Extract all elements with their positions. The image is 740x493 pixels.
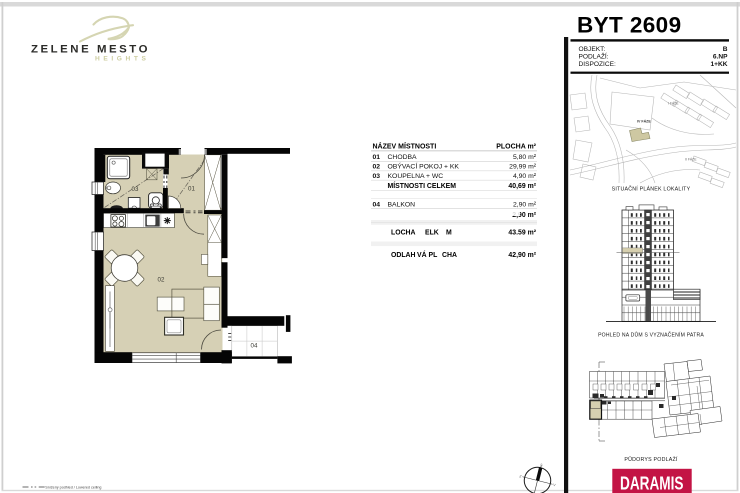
svg-text:02: 02 bbox=[158, 277, 165, 284]
svg-text:5,80 m²: 5,80 m² bbox=[513, 154, 537, 161]
svg-text:KOUPELNA + WC: KOUPELNA + WC bbox=[388, 173, 444, 180]
svg-text:ODLAH: ODLAH bbox=[391, 252, 416, 259]
svg-text:IV FÁZE: IV FÁZE bbox=[637, 119, 651, 124]
svg-text:OBJEKT:: OBJEKT: bbox=[579, 46, 606, 53]
svg-text:M: M bbox=[446, 229, 452, 236]
svg-text:Snížený podhled / Lowered ceil: Snížený podhled / Lowered ceiling bbox=[45, 486, 101, 490]
svg-text:OBÝVACÍ POKOJ + KK: OBÝVACÍ POKOJ + KK bbox=[388, 162, 460, 171]
svg-text:SITUAČNÍ PLÁNEK LOKALITY: SITUAČNÍ PLÁNEK LOKALITY bbox=[612, 186, 691, 193]
svg-text:HEIGHTS: HEIGHTS bbox=[95, 55, 150, 62]
svg-text:04: 04 bbox=[373, 201, 381, 208]
svg-text:DARAMIS: DARAMIS bbox=[620, 474, 684, 493]
svg-text:BYT 2609: BYT 2609 bbox=[577, 13, 682, 38]
svg-text:ZELENE MESTO: ZELENE MESTO bbox=[31, 43, 150, 55]
svg-text:MÍSTNOSTI CELKEM: MÍSTNOSTI CELKEM bbox=[388, 181, 457, 190]
svg-text:POHLED NA DŮM S VYZNAČENÍM PAT: POHLED NA DŮM S VYZNAČENÍM PATRA bbox=[598, 332, 704, 339]
svg-text:01: 01 bbox=[188, 186, 195, 193]
svg-text:CHODBA: CHODBA bbox=[388, 154, 418, 161]
svg-text:ELK: ELK bbox=[425, 229, 439, 236]
svg-text:NÁZEV MÍSTNOSTI: NÁZEV MÍSTNOSTI bbox=[373, 141, 437, 150]
svg-text:LOCHA: LOCHA bbox=[391, 229, 416, 236]
svg-text:1+KK: 1+KK bbox=[710, 61, 727, 68]
svg-text:6.NP: 6.NP bbox=[713, 53, 728, 60]
svg-text:PŮDORYS PODLAŽÍ: PŮDORYS PODLAŽÍ bbox=[624, 455, 678, 463]
svg-text:02: 02 bbox=[373, 164, 381, 171]
svg-text:PODLAŽÍ:: PODLAŽÍ: bbox=[579, 51, 609, 60]
svg-text:2,90 m²: 2,90 m² bbox=[513, 201, 537, 208]
svg-text:CHA: CHA bbox=[442, 252, 457, 259]
svg-text:42,90 m²: 42,90 m² bbox=[508, 252, 536, 259]
svg-text:VÁ PL: VÁ PL bbox=[417, 250, 437, 259]
svg-text:PLOCHA m²: PLOCHA m² bbox=[496, 143, 536, 150]
svg-text:43.59 m²: 43.59 m² bbox=[508, 229, 536, 236]
svg-text:04: 04 bbox=[251, 343, 258, 350]
svg-text:03: 03 bbox=[373, 173, 381, 180]
svg-text:03: 03 bbox=[132, 186, 139, 193]
svg-text:I FÁZE: I FÁZE bbox=[668, 102, 679, 106]
svg-text:BALKON: BALKON bbox=[388, 201, 416, 208]
svg-text:40,69 m²: 40,69 m² bbox=[508, 183, 536, 190]
svg-text:B: B bbox=[723, 46, 728, 53]
svg-text:01: 01 bbox=[373, 154, 381, 161]
svg-text:DISPOZICE:: DISPOZICE: bbox=[579, 61, 617, 68]
svg-text:29,99 m²: 29,99 m² bbox=[509, 164, 537, 171]
svg-text:4,90 m²: 4,90 m² bbox=[513, 173, 537, 180]
svg-text:II FÁZE: II FÁZE bbox=[685, 158, 697, 162]
